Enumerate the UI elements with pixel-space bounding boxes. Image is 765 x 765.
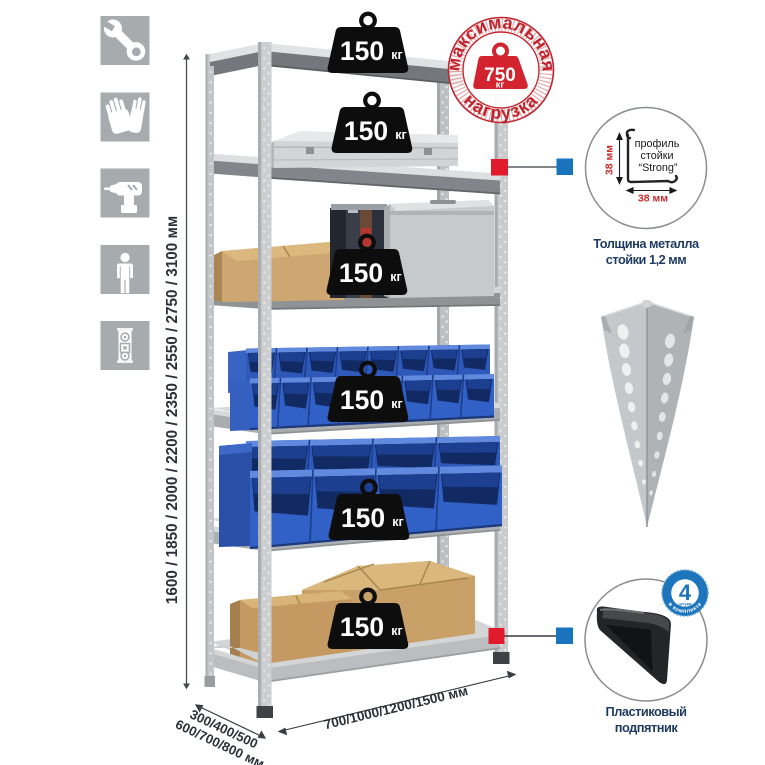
svg-text:кг: кг bbox=[395, 128, 406, 142]
svg-text:подпятник: подпятник bbox=[615, 720, 679, 735]
svg-text:38 мм: 38 мм bbox=[604, 145, 616, 175]
svg-text:150: 150 bbox=[340, 385, 384, 415]
svg-text:кг: кг bbox=[391, 48, 402, 62]
svg-text:Толщина металла: Толщина металла bbox=[593, 236, 700, 251]
svg-text:кг: кг bbox=[392, 515, 403, 529]
svg-text:1600 / 1850 / 2000 / 2200 / 23: 1600 / 1850 / 2000 / 2200 / 2350 / 2550 … bbox=[164, 216, 181, 604]
svg-text:“Strong”: “Strong” bbox=[638, 162, 677, 174]
svg-text:кг: кг bbox=[496, 80, 505, 91]
svg-text:38 мм: 38 мм bbox=[638, 193, 668, 205]
svg-text:кг: кг bbox=[390, 270, 401, 284]
svg-text:профиль: профиль bbox=[635, 138, 680, 150]
svg-text:кг: кг bbox=[391, 624, 402, 638]
svg-text:150: 150 bbox=[339, 258, 383, 288]
svg-text:150: 150 bbox=[340, 612, 384, 642]
svg-text:150: 150 bbox=[341, 503, 385, 533]
svg-text:стойки 1,2 мм: стойки 1,2 мм bbox=[606, 252, 687, 267]
svg-text:кг: кг bbox=[391, 397, 402, 411]
svg-text:стойки: стойки bbox=[640, 150, 673, 162]
svg-text:Пластиковый: Пластиковый bbox=[606, 704, 687, 719]
svg-text:150: 150 bbox=[344, 116, 388, 146]
svg-text:150: 150 bbox=[340, 36, 384, 66]
svg-text:штуки: штуки bbox=[678, 602, 692, 607]
